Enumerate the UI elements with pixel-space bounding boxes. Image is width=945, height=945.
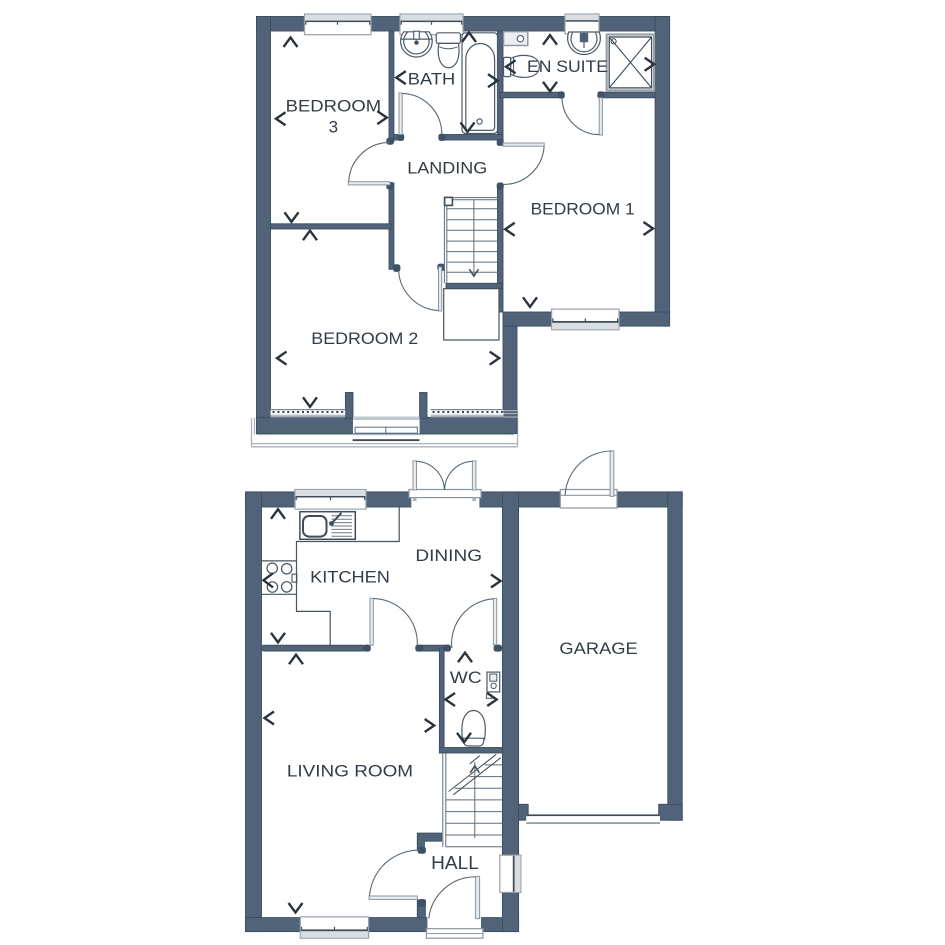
svg-text:LIVING ROOM: LIVING ROOM	[287, 761, 413, 780]
svg-text:KITCHEN: KITCHEN	[310, 568, 390, 587]
svg-text:BEDROOM: BEDROOM	[286, 97, 382, 116]
svg-text:DINING: DINING	[415, 546, 482, 565]
svg-text:WC: WC	[450, 668, 482, 687]
svg-text:BATH: BATH	[408, 70, 455, 89]
svg-text:LANDING: LANDING	[407, 159, 487, 178]
svg-text:EN SUITE: EN SUITE	[527, 57, 608, 76]
svg-text:HALL: HALL	[431, 853, 479, 873]
svg-text:BEDROOM 2: BEDROOM 2	[311, 329, 418, 348]
svg-text:GARAGE: GARAGE	[559, 639, 637, 658]
svg-text:BEDROOM 1: BEDROOM 1	[531, 199, 635, 218]
svg-text:3: 3	[329, 118, 338, 137]
